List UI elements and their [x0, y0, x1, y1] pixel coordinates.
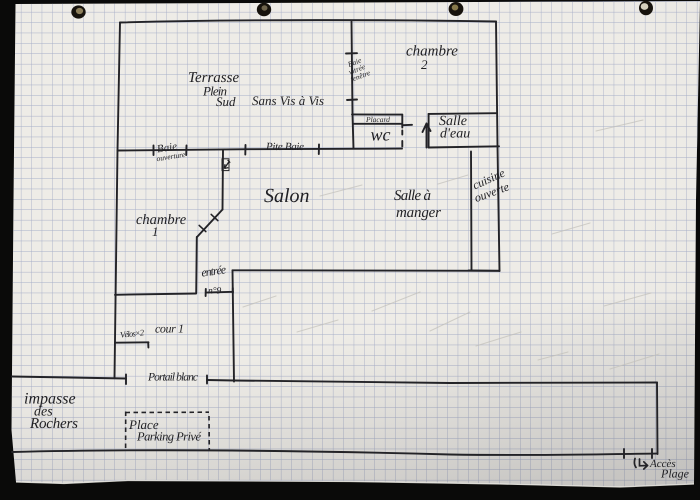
svg-text:Placard: Placard: [365, 115, 390, 124]
svg-text:1: 1: [152, 224, 159, 239]
svg-text:Sud: Sud: [216, 94, 236, 109]
svg-text:Salle à: Salle à: [394, 188, 431, 204]
svg-text:Rochers: Rochers: [29, 416, 78, 432]
svg-text:Sans Vis à Vis: Sans Vis à Vis: [252, 93, 324, 108]
svg-text:d'eau: d'eau: [440, 127, 470, 142]
svg-text:Plage: Plage: [660, 467, 690, 481]
svg-text:Pite Baie: Pite Baie: [265, 141, 304, 153]
svg-text:Portail blanc: Portail blanc: [147, 372, 198, 384]
svg-text:wc: wc: [371, 125, 391, 145]
svg-text:cour 1: cour 1: [155, 322, 184, 336]
svg-text:manger: manger: [396, 205, 441, 221]
svg-text:2: 2: [421, 57, 428, 72]
svg-text:chambre: chambre: [406, 44, 458, 60]
svg-text:n°9: n°9: [208, 287, 222, 297]
svg-text:Parking Privé: Parking Privé: [136, 430, 201, 444]
svg-text:Salon: Salon: [264, 185, 310, 207]
svg-text:chambre: chambre: [136, 212, 187, 228]
